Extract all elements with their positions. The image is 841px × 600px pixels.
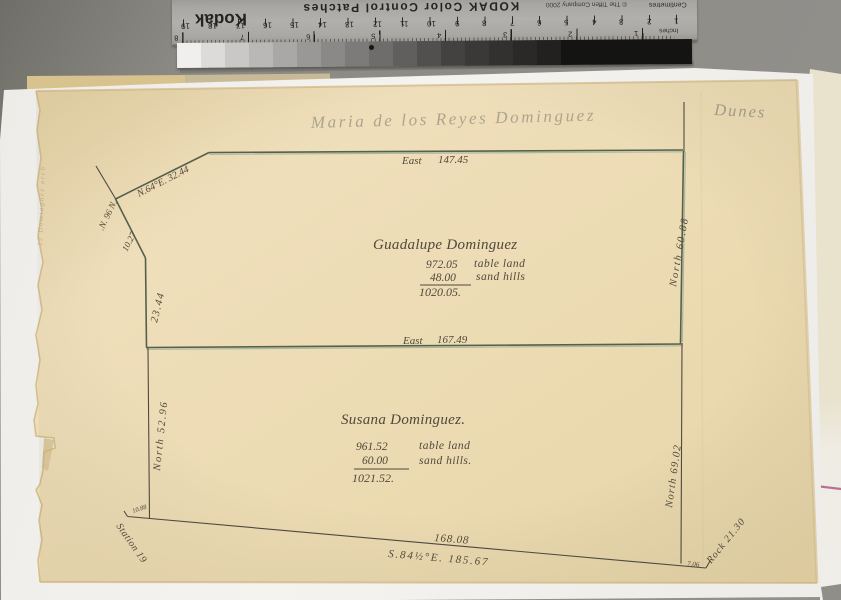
svg-text:147.45: 147.45 [438, 154, 469, 166]
svg-text:Station 19: Station 19 [114, 521, 149, 565]
svg-text:sand hills.: sand hills. [419, 455, 472, 467]
svg-text:table land: table land [474, 258, 525, 270]
svg-text:48.00: 48.00 [430, 272, 456, 284]
svg-text:972.05: 972.05 [426, 259, 458, 271]
svg-text:Dunes: Dunes [713, 100, 767, 122]
svg-text:Maria de los Reyes Dominguez: Maria de los Reyes Dominguez [310, 106, 597, 132]
svg-text:East: East [402, 335, 424, 347]
svg-text:23.44: 23.44 [149, 291, 167, 324]
svg-text:East: East [401, 155, 423, 167]
svg-text:North 60.88: North 60.88 [668, 216, 691, 288]
svg-text:60.00: 60.00 [362, 455, 388, 467]
svg-text:12 Dominguez arch: 12 Dominguez arch [36, 165, 47, 246]
svg-text:167.49: 167.49 [437, 334, 468, 346]
svg-text:table land: table land [419, 440, 470, 452]
svg-text:North 52.96: North 52.96 [152, 400, 170, 472]
svg-text:10.27: 10.27 [120, 230, 138, 253]
svg-text:N.64°E. 32.44: N.64°E. 32.44 [134, 164, 190, 200]
svg-text:sand hills: sand hills [476, 271, 525, 283]
svg-text:Rock 21.30: Rock 21.30 [704, 516, 748, 566]
svg-text:.N. 96 N.: .N. 96 N. [96, 198, 119, 231]
svg-text:1020.05.: 1020.05. [419, 285, 461, 299]
svg-text:1021.52.: 1021.52. [352, 471, 394, 485]
svg-text:7.06: 7.06 [687, 560, 700, 569]
svg-text:Guadalupe Dominguez: Guadalupe Dominguez [373, 237, 517, 253]
svg-text:961.52: 961.52 [356, 441, 388, 453]
svg-text:10.88: 10.88 [131, 503, 148, 514]
svg-text:Susana Dominguez.: Susana Dominguez. [341, 412, 465, 428]
svg-text:S.84½°E. 185.67: S.84½°E. 185.67 [388, 548, 490, 568]
